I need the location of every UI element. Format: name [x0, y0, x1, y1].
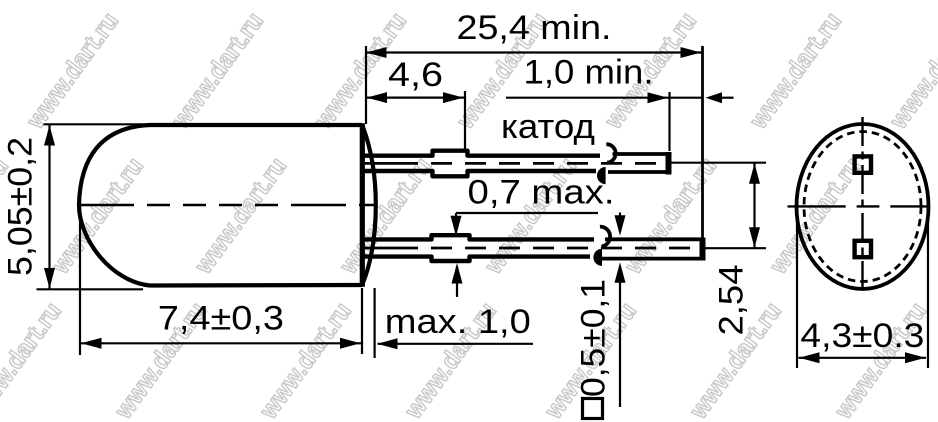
svg-text:4,6: 4,6	[388, 56, 443, 94]
svg-text:0,5±0,1: 0,5±0,1	[575, 279, 613, 397]
svg-text:катод: катод	[501, 108, 595, 146]
svg-text:1,0 min.: 1,0 min.	[524, 53, 654, 91]
svg-text:max. 1,0: max. 1,0	[385, 303, 531, 341]
svg-text:7,4±0,3: 7,4±0,3	[158, 299, 284, 337]
svg-text:0,7 max.: 0,7 max.	[468, 173, 615, 211]
svg-text:25,4 min.: 25,4 min.	[457, 9, 612, 47]
svg-text:4,3±0.3: 4,3±0.3	[800, 317, 924, 355]
svg-text:5,05±0,2: 5,05±0,2	[2, 137, 40, 276]
svg-text:2,54: 2,54	[713, 265, 751, 336]
